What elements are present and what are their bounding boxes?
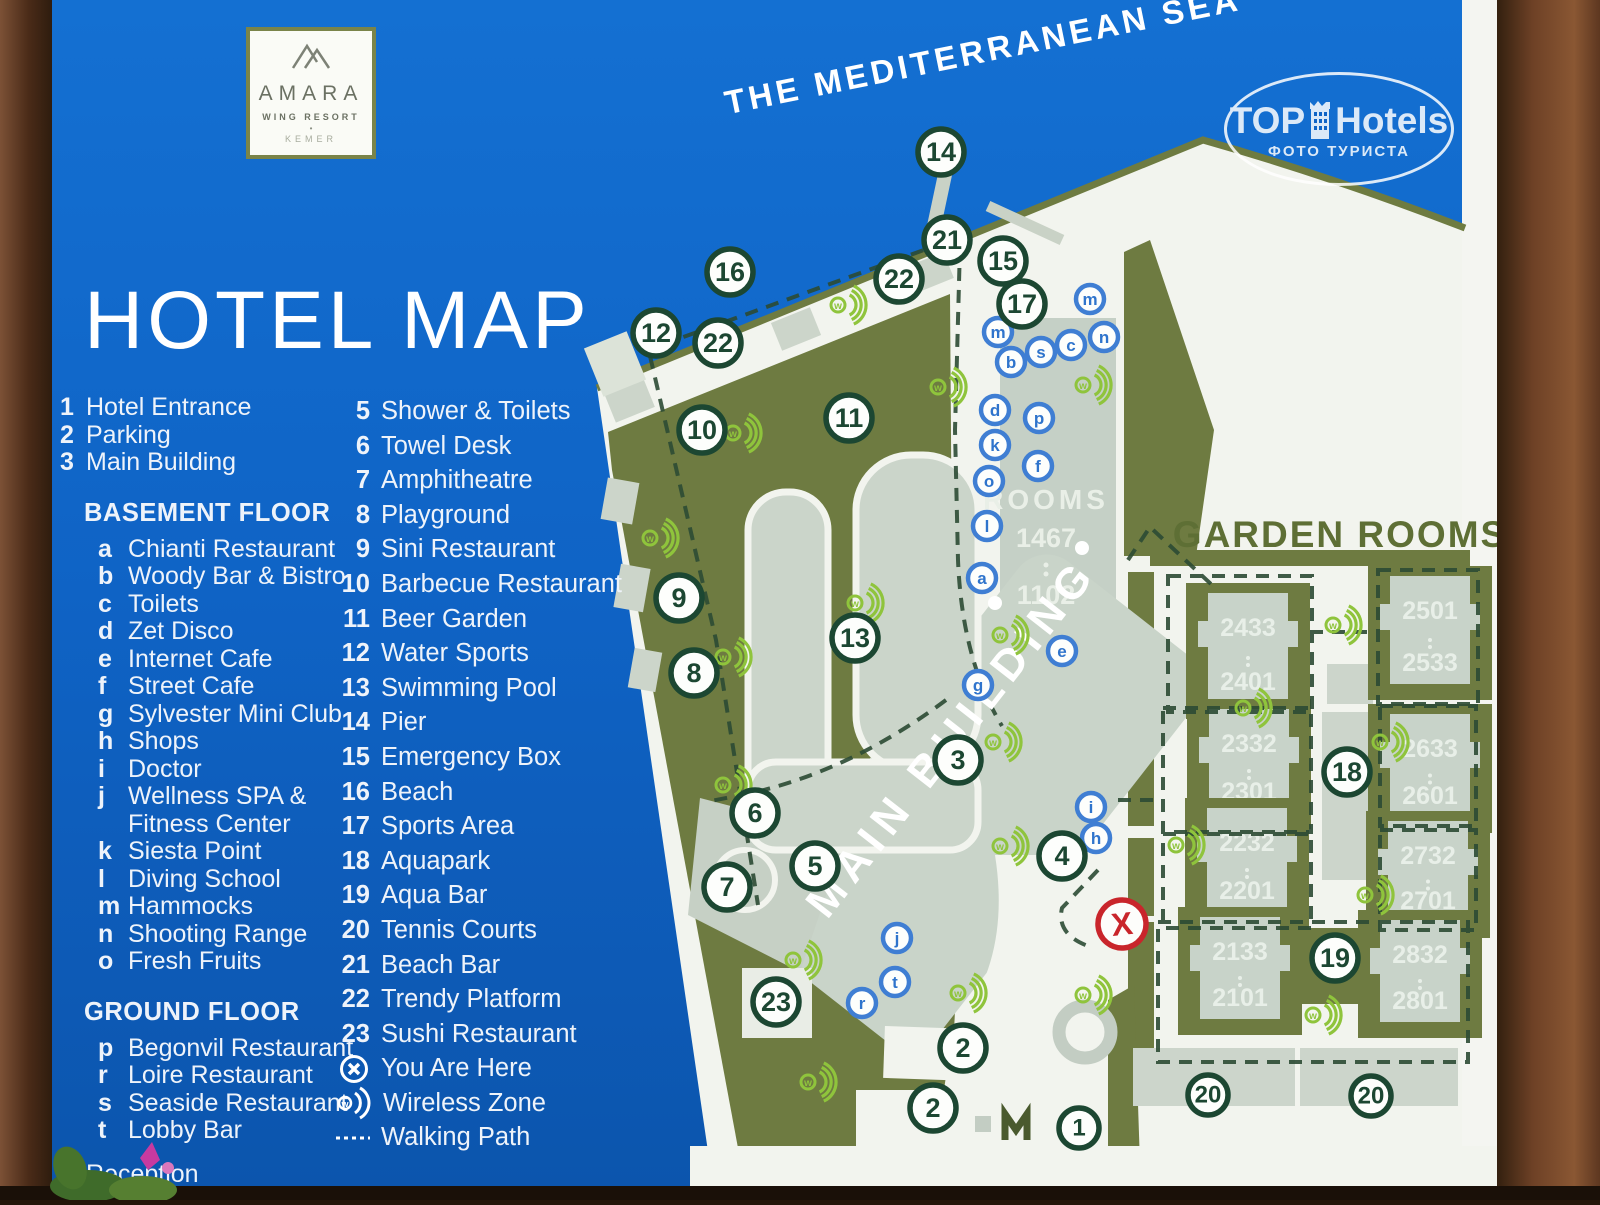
legend-label: Shower & Toilets (381, 394, 570, 429)
legend-key: a (98, 536, 128, 564)
svg-text:w: w (1375, 738, 1384, 749)
map-marker-1: 1 (1059, 1108, 1099, 1148)
svg-text:22: 22 (884, 264, 914, 294)
svg-text:3: 3 (950, 745, 965, 775)
svg-text:e: e (1057, 642, 1066, 661)
svg-text:d: d (990, 401, 1000, 420)
svg-text:h: h (1091, 829, 1101, 848)
logo-name: AMARA (259, 82, 364, 106)
legend-label: Pier (381, 705, 426, 740)
svg-text:2: 2 (955, 1033, 970, 1063)
svg-text:w: w (718, 781, 727, 792)
legend-label: Amphitheatre (381, 463, 533, 498)
svg-text:13: 13 (840, 623, 870, 653)
svg-text:w: w (788, 956, 797, 967)
svg-text:10: 10 (687, 415, 717, 445)
legend-label: Shops (128, 728, 199, 756)
svg-text:22: 22 (703, 328, 733, 358)
svg-text:11: 11 (835, 403, 864, 433)
legend-item-main-building: 3Main Building (60, 449, 360, 477)
svg-text:w: w (1238, 704, 1247, 715)
svg-text:19: 19 (1320, 943, 1350, 973)
legend-label: Trendy Platform (381, 982, 561, 1017)
svg-text:2801: 2801 (1392, 987, 1448, 1015)
svg-text:2: 2 (925, 1093, 940, 1123)
map-letter-d: d (981, 396, 1009, 424)
legend-key: 14 (336, 705, 370, 740)
legend-label: Swimming Pool (381, 671, 557, 706)
rooms-range-dots (1044, 563, 1049, 568)
legend-item-shooting-range: nShooting Range (60, 921, 360, 949)
svg-text:6: 6 (747, 798, 762, 828)
svg-text:j: j (894, 929, 900, 948)
svg-text:4: 4 (1054, 841, 1069, 871)
legend-key: p (98, 1035, 128, 1063)
map-marker-5: 5 (792, 843, 838, 889)
legend-item-amphitheatre: 7Amphitheatre (336, 463, 646, 498)
wireless-icon: w (336, 1086, 372, 1120)
legend-column-2: 5Shower & Toilets6Towel Desk7Amphitheatr… (336, 394, 646, 1155)
legend-key: 22 (336, 982, 370, 1017)
map-marker-3: 3 (935, 737, 981, 783)
legend-key: 8 (336, 498, 370, 533)
svg-text:2332: 2332 (1221, 730, 1277, 758)
svg-text:15: 15 (988, 246, 1018, 276)
legend-key: 16 (336, 775, 370, 810)
logo-dot: • (310, 124, 313, 133)
mountain-icon (285, 42, 337, 72)
svg-text:w: w (1078, 381, 1087, 392)
legend-key: i (98, 756, 128, 784)
legend-label: Diving School (128, 866, 281, 894)
legend-key: k (98, 838, 128, 866)
legend-label: Woody Bar & Bistro (128, 563, 346, 591)
legend-label: Fresh Fruits (128, 948, 261, 976)
legend-item-internet-cafe: eInternet Cafe (60, 646, 360, 674)
svg-text:w: w (1360, 891, 1369, 902)
legend-item-emergency-box: 15Emergency Box (336, 740, 646, 775)
legend-item-begonvil-restaurant: pBegonvil Restaurant (60, 1035, 360, 1063)
map-marker-13: 13 (832, 615, 878, 661)
legend-item-hotel-entrance: 1Hotel Entrance (60, 394, 360, 422)
legend-item-trendy-platform: 22Trendy Platform (336, 982, 646, 1017)
legend-key: f (98, 673, 128, 701)
legend-item-woody-bar-bistro: bWoody Bar & Bistro (60, 563, 360, 591)
legend-key: 18 (336, 844, 370, 879)
svg-text:7: 7 (719, 872, 734, 902)
map-marker-19: 19 (1312, 935, 1358, 981)
svg-text:f: f (1035, 457, 1041, 476)
legend-key: 6 (336, 429, 370, 464)
legend-item-parking: 2Parking (60, 422, 360, 450)
svg-text:2533: 2533 (1402, 649, 1458, 677)
legend-label: Barbecue Restaurant (381, 567, 622, 602)
amara-logo: AMARA WING RESORT • KEMER (246, 27, 376, 159)
legend-item-swimming-pool: 13Swimming Pool (336, 671, 646, 706)
legend-label: Zet Disco (128, 618, 234, 646)
map-letter-p: p (1025, 404, 1053, 432)
map-letter-k: k (981, 431, 1009, 459)
legend-label: Siesta Point (128, 838, 261, 866)
legend-label: Sylvester Mini Club (128, 701, 342, 729)
map-letter-l: l (973, 512, 1001, 540)
legend-item-walking-path: Walking Path (336, 1120, 646, 1155)
legend-label: Street Cafe (128, 673, 254, 701)
svg-text:1: 1 (1072, 1115, 1085, 1142)
legend-item-sushi-restaurant: 23Sushi Restaurant (336, 1017, 646, 1052)
map-marker-14: 14 (918, 129, 964, 175)
legend-key: 12 (336, 636, 370, 671)
legend-label: Chianti Restaurant (128, 536, 335, 564)
legend-key: b (98, 563, 128, 591)
garden-rooms-label: GARDEN ROOMS (1173, 514, 1507, 555)
svg-text:k: k (990, 436, 1000, 455)
svg-text:2501: 2501 (1402, 597, 1458, 625)
legend-label: Wireless Zone (383, 1089, 546, 1118)
svg-text:20: 20 (1358, 1083, 1385, 1110)
map-letter-o: o (975, 467, 1003, 495)
map-marker-2: 2 (940, 1025, 986, 1071)
rooms-dot (988, 596, 1002, 610)
legend-item-diving-school: lDiving School (60, 866, 360, 894)
map-marker-8: 8 (671, 650, 717, 696)
legend-item-sylvester-mini-club: gSylvester Mini Club (60, 701, 360, 729)
legend-label: Beach (381, 775, 453, 810)
legend-key: 20 (336, 913, 370, 948)
legend-label: Seaside Restaurant (128, 1090, 348, 1118)
legend-key: 15 (336, 740, 370, 775)
map-marker-23: 23 (753, 979, 799, 1025)
map-letter-g: g (964, 671, 992, 699)
legend-item-tennis-courts: 20Tennis Courts (336, 913, 646, 948)
legend-column-1: 1Hotel Entrance2Parking3Main Building BA… (60, 394, 360, 1188)
svg-text:w: w (1171, 841, 1180, 852)
legend-item-fresh-fruits: oFresh Fruits (60, 948, 360, 976)
legend-item-chianti-restaurant: aChianti Restaurant (60, 536, 360, 564)
svg-text:17: 17 (1007, 289, 1037, 319)
legend-label: Main Building (86, 449, 236, 477)
legend-label: Beach Bar (381, 948, 500, 983)
map-letter-c: c (1057, 331, 1085, 359)
map-letter-j: j (883, 924, 911, 952)
map-marker-2: 2 (910, 1085, 956, 1131)
svg-text:14: 14 (926, 137, 956, 167)
legend-label: Sushi Restaurant (381, 1017, 577, 1052)
watermark-oval (1224, 72, 1454, 186)
legend-item-wellness-spa-: jWellness SPA &Fitness Center (60, 783, 360, 838)
legend-label: Beer Garden (381, 602, 527, 637)
map-marker-15: 15 (980, 238, 1026, 284)
map-letter-b: b (997, 348, 1025, 376)
svg-text:c: c (1066, 336, 1075, 355)
legend-item-beach: 16Beach (336, 775, 646, 810)
you-are-here-icon (336, 1053, 370, 1085)
legend-key: 1 (60, 394, 86, 422)
legend-item-playground: 8Playground (336, 498, 646, 533)
legend-key: s (98, 1090, 128, 1118)
map-marker-21: 21 (924, 217, 970, 263)
legend-label: Internet Cafe (128, 646, 273, 674)
map-marker-20: 20 (1188, 1075, 1228, 1115)
legend-label: Shooting Range (128, 921, 307, 949)
legend-key: 13 (336, 671, 370, 706)
svg-text:18: 18 (1332, 757, 1362, 787)
svg-text:n: n (1099, 328, 1109, 347)
legend-label: Aquapark (381, 844, 490, 879)
legend-key: n (98, 921, 128, 949)
legend-label: Towel Desk (381, 429, 511, 464)
legend-label: Aqua Bar (381, 878, 487, 913)
map-marker-10: 10 (679, 407, 725, 453)
svg-text:2732: 2732 (1400, 842, 1456, 870)
legend-label: Hotel Entrance (86, 394, 251, 422)
legend-label: Emergency Box (381, 740, 561, 775)
legend-key: 3 (60, 449, 86, 477)
map-marker-22: 22 (695, 320, 741, 366)
legend-label: Hammocks (128, 893, 253, 921)
svg-text:m: m (1082, 290, 1097, 309)
map-marker-22: 22 (876, 256, 922, 302)
tophotels-watermark: TOP Hotels ФОТО ТУРИСТА (1222, 68, 1456, 190)
walking-path-icon (336, 1133, 370, 1143)
svg-text:w: w (718, 653, 727, 664)
svg-text:l: l (985, 517, 990, 536)
legend-label: Doctor (128, 756, 202, 784)
svg-text:w: w (1308, 1011, 1317, 1022)
svg-text:5: 5 (807, 851, 822, 881)
legend-item-water-sports: 12Water Sports (336, 636, 646, 671)
rooms-dot (1075, 541, 1089, 555)
map-letter-f: f (1024, 452, 1052, 480)
legend-label: Wellness SPA &Fitness Center (128, 783, 306, 838)
map-letter-i: i (1077, 793, 1105, 821)
legend-key: h (98, 728, 128, 756)
map-marker-6: 6 (732, 790, 778, 836)
svg-text:w: w (850, 599, 859, 610)
map-marker-11: 11 (826, 395, 872, 441)
legend-item-hammocks: mHammocks (60, 893, 360, 921)
legend-key: l (98, 866, 128, 894)
legend-key: 19 (336, 878, 370, 913)
legend-item-pier: 14Pier (336, 705, 646, 740)
svg-text:2832: 2832 (1392, 941, 1448, 969)
legend-key: c (98, 591, 128, 619)
rooms-range-high: 1467 (1016, 523, 1076, 553)
svg-text:2133: 2133 (1212, 938, 1268, 966)
legend-key: 21 (336, 948, 370, 983)
map-letter-n: n (1090, 323, 1118, 351)
svg-text:2101: 2101 (1212, 984, 1268, 1012)
legend-item-shower-toilets: 5Shower & Toilets (336, 394, 646, 429)
legend-key: g (98, 701, 128, 729)
svg-text:s: s (1036, 343, 1045, 362)
legend-item-seaside-restaurant: sSeaside Restaurant (60, 1090, 360, 1118)
legend-key: o (98, 948, 128, 976)
svg-text:2433: 2433 (1220, 614, 1276, 642)
legend-item-doctor: iDoctor (60, 756, 360, 784)
legend-key: e (98, 646, 128, 674)
legend-key: 23 (336, 1017, 370, 1052)
svg-text:w: w (933, 383, 942, 394)
legend-item-shops: hShops (60, 728, 360, 756)
svg-text:w: w (803, 1078, 812, 1089)
svg-text:8: 8 (686, 658, 701, 688)
legend-item-beach-bar: 21Beach Bar (336, 948, 646, 983)
legend-label: You Are Here (381, 1054, 532, 1083)
svg-text:2201: 2201 (1219, 877, 1275, 905)
map-marker-7: 7 (704, 864, 750, 910)
legend-label: Tennis Courts (381, 913, 537, 948)
map-letter-t: t (881, 968, 909, 996)
svg-text:23: 23 (761, 987, 791, 1017)
legend-key: 11 (336, 602, 370, 637)
legend-item-wireless-zone: w Wireless Zone (336, 1086, 646, 1121)
legend-item-street-cafe: fStreet Cafe (60, 673, 360, 701)
svg-text:t: t (892, 973, 898, 992)
map-marker-12: 12 (633, 310, 679, 356)
map-letter-a: a (968, 564, 996, 592)
plant (48, 1128, 258, 1200)
legend-item-toilets: cToilets (60, 591, 360, 619)
photo-frame-right (1497, 0, 1600, 1200)
svg-text:9: 9 (671, 583, 686, 613)
legend-item-beer-garden: 11Beer Garden (336, 602, 646, 637)
legend-item-sini-restaurant: 9Sini Restaurant (336, 532, 646, 567)
svg-text:p: p (1034, 409, 1044, 428)
legend-key: j (98, 783, 128, 811)
map-letter-e: e (1048, 637, 1076, 665)
legend-item-siesta-point: kSiesta Point (60, 838, 360, 866)
svg-text:16: 16 (715, 257, 745, 287)
legend-label: Sini Restaurant (381, 532, 555, 567)
legend-key: m (98, 893, 128, 921)
legend-label: Playground (381, 498, 510, 533)
map-letter-s: s (1027, 338, 1055, 366)
svg-text:w: w (953, 989, 962, 1000)
svg-text:21: 21 (932, 225, 962, 255)
svg-text:w: w (1328, 621, 1337, 632)
legend-key: 2 (60, 422, 86, 450)
legend-key: d (98, 618, 128, 646)
logo-city: KEMER (285, 134, 337, 144)
svg-text:g: g (973, 676, 983, 695)
svg-text:b: b (1006, 353, 1016, 372)
map-letter-r: r (848, 989, 876, 1017)
you-are-here-marker: X (1096, 898, 1149, 951)
legend-label: Water Sports (381, 636, 529, 671)
svg-text:r: r (859, 994, 866, 1013)
legend-key: r (98, 1062, 128, 1090)
page-title: HOTEL MAP (84, 274, 591, 368)
ground-floor-header: GROUND FLOOR (84, 998, 360, 1027)
svg-text:X: X (1110, 905, 1136, 943)
legend-item-loire-restaurant: rLoire Restaurant (60, 1062, 360, 1090)
map-marker-4: 4 (1039, 833, 1085, 879)
legend-item-aqua-bar: 19Aqua Bar (336, 878, 646, 913)
photo-frame-left (0, 0, 52, 1200)
svg-text:w: w (728, 429, 737, 440)
map-letter-m: m (1076, 285, 1104, 313)
legend-label: Toilets (128, 591, 199, 619)
map-marker-17: 17 (999, 281, 1045, 327)
svg-text:2633: 2633 (1402, 735, 1458, 763)
legend-label: Sports Area (381, 809, 514, 844)
svg-text:w: w (995, 842, 1004, 853)
legend-item-towel-desk: 6Towel Desk (336, 429, 646, 464)
legend-item-barbecue-restaurant: 10Barbecue Restaurant (336, 567, 646, 602)
legend-label: Walking Path (381, 1123, 530, 1152)
legend-key: 7 (336, 463, 370, 498)
svg-text:w: w (833, 301, 842, 312)
logo-subtitle: WING RESORT (262, 112, 360, 122)
legend-item-sports-area: 17Sports Area (336, 809, 646, 844)
legend-label: Parking (86, 422, 171, 450)
legend-item-you-are-here: You Are Here (336, 1051, 646, 1086)
legend-key: 10 (336, 567, 370, 602)
svg-text:20: 20 (1195, 1082, 1222, 1109)
legend-key: 9 (336, 532, 370, 567)
svg-text:a: a (977, 569, 987, 588)
svg-text:w: w (645, 534, 654, 545)
basement-floor-header: BASEMENT FLOOR (84, 499, 360, 528)
legend-item-zet-disco: dZet Disco (60, 618, 360, 646)
svg-text:w: w (995, 631, 1004, 642)
svg-text:w: w (988, 738, 997, 749)
garden-block-2433: 24332401 (1186, 583, 1310, 719)
svg-text:w: w (1078, 991, 1087, 1002)
svg-text:o: o (984, 472, 994, 491)
legend-item-aquapark: 18Aquapark (336, 844, 646, 879)
legend-label: Loire Restaurant (128, 1062, 313, 1090)
map-marker-16: 16 (707, 249, 753, 295)
map-marker-9: 9 (656, 575, 702, 621)
svg-text:2601: 2601 (1402, 782, 1458, 810)
map-marker-20: 20 (1351, 1076, 1391, 1116)
legend-label: Begonvil Restaurant (128, 1035, 353, 1063)
garden-block-2501: 25012533 (1368, 566, 1492, 700)
legend-key: 5 (336, 394, 370, 429)
map-marker-18: 18 (1324, 749, 1370, 795)
svg-text:2401: 2401 (1220, 668, 1276, 696)
svg-text:i: i (1089, 798, 1094, 817)
svg-text:w: w (340, 1099, 349, 1109)
svg-text:m: m (990, 323, 1005, 342)
legend-key: 17 (336, 809, 370, 844)
svg-text:12: 12 (641, 318, 671, 348)
